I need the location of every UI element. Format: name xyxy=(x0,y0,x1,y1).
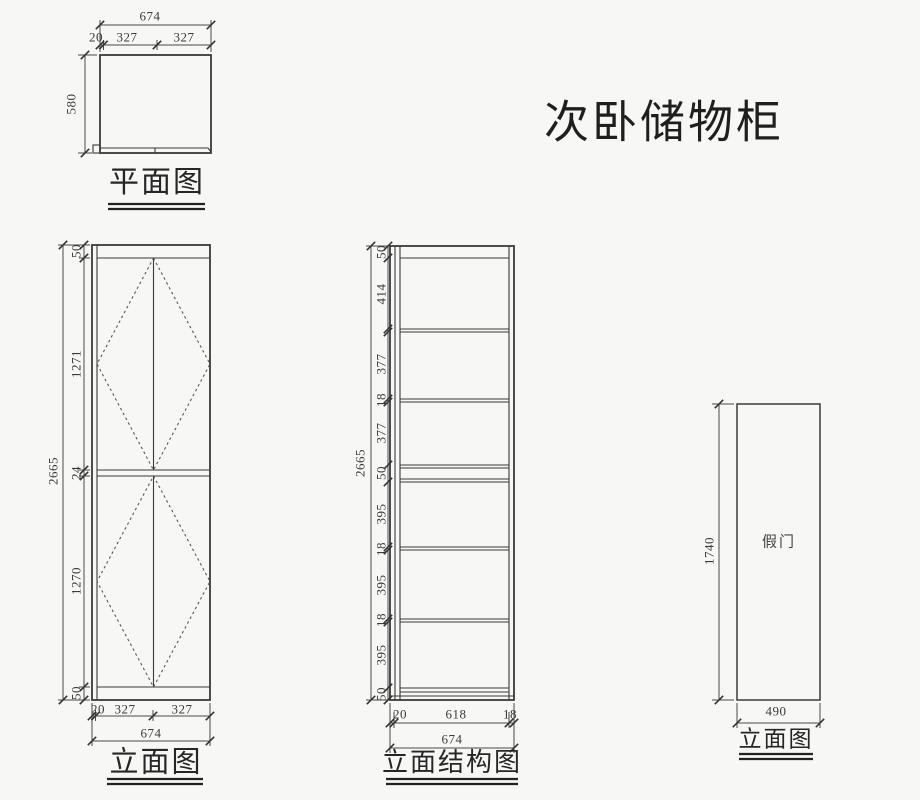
cabinet-drawing-sheet: 次卧储物柜 674 20 327 327 580 平面图 2665 50 127… xyxy=(0,0,920,800)
plan-label-underline xyxy=(108,204,205,209)
plan-dim-split-1: 327 xyxy=(117,31,138,44)
front-elevation-label-underline xyxy=(107,779,203,784)
side-elevation-outline xyxy=(737,404,820,700)
side-elevation-dim-ticks xyxy=(715,400,824,727)
struct-dim-seg-10: 395 xyxy=(375,645,388,666)
struct-dim-seg-8: 395 xyxy=(375,575,388,596)
elev-dim-width-total: 674 xyxy=(141,727,162,740)
struct-dim-seg-4: 377 xyxy=(375,423,388,444)
front-elevation-dim-ticks xyxy=(59,241,214,745)
front-elevation-dim-lines xyxy=(58,245,210,746)
side-elevation-label-underline xyxy=(739,754,813,759)
struct-dim-wsplit-0: 20 xyxy=(393,708,407,721)
struct-dim-wsplit-1: 618 xyxy=(446,708,467,721)
struct-dim-seg-5: 50 xyxy=(375,466,388,480)
struct-dim-seg-0: 50 xyxy=(375,245,388,259)
struct-dim-seg-1: 414 xyxy=(375,284,388,305)
struct-dim-height-total: 2665 xyxy=(354,449,367,477)
side-dim-height: 1740 xyxy=(703,537,716,565)
struct-dim-width-total: 674 xyxy=(442,733,463,746)
structure-elevation-details xyxy=(390,246,514,700)
struct-dim-wsplit-2: 18 xyxy=(503,708,517,721)
structure-elevation-outline xyxy=(390,246,514,700)
plan-dim-depth: 580 xyxy=(65,94,78,115)
plan-dim-split-0: 20 xyxy=(89,31,103,44)
struct-dim-seg-6: 395 xyxy=(375,504,388,525)
fake-door-label: 假门 xyxy=(762,531,796,552)
elev-dim-wsplit-2: 327 xyxy=(172,703,193,716)
elev-dim-seg-1: 1271 xyxy=(70,350,83,378)
struct-dim-seg-9: 18 xyxy=(375,613,388,627)
side-dim-width: 490 xyxy=(766,705,787,718)
elev-dim-seg-3: 1270 xyxy=(70,567,83,595)
structure-elevation-label-underline xyxy=(386,779,518,784)
elev-dim-wsplit-0: 20 xyxy=(91,703,105,716)
elev-dim-wsplit-1: 327 xyxy=(115,703,136,716)
side-elevation-dim-lines xyxy=(712,404,820,728)
structure-elevation-label: 立面结构图 xyxy=(382,750,522,776)
struct-dim-seg-11: 50 xyxy=(375,687,388,701)
front-elevation-details xyxy=(97,245,210,700)
drawing-title: 次卧储物柜 xyxy=(544,101,784,146)
elev-dim-height-total: 2665 xyxy=(47,457,60,485)
structure-elevation-dim-lines xyxy=(366,246,514,753)
front-elevation-label: 立面图 xyxy=(109,749,202,778)
struct-dim-seg-2: 377 xyxy=(375,354,388,375)
struct-dim-seg-7: 18 xyxy=(375,542,388,556)
plan-view-outline xyxy=(100,55,211,153)
front-elevation-outline xyxy=(92,245,210,700)
plan-dim-width-total: 674 xyxy=(140,10,161,23)
plan-view-details xyxy=(93,145,211,153)
elev-dim-seg-0: 50 xyxy=(70,244,83,258)
elev-dim-seg-2: 24 xyxy=(70,466,83,480)
plan-view-label: 平面图 xyxy=(109,168,205,198)
side-elevation-label: 立面图 xyxy=(739,728,814,751)
struct-dim-seg-3: 18 xyxy=(375,393,388,407)
elev-dim-seg-4: 50 xyxy=(70,686,83,700)
plan-dim-split-2: 327 xyxy=(174,31,195,44)
